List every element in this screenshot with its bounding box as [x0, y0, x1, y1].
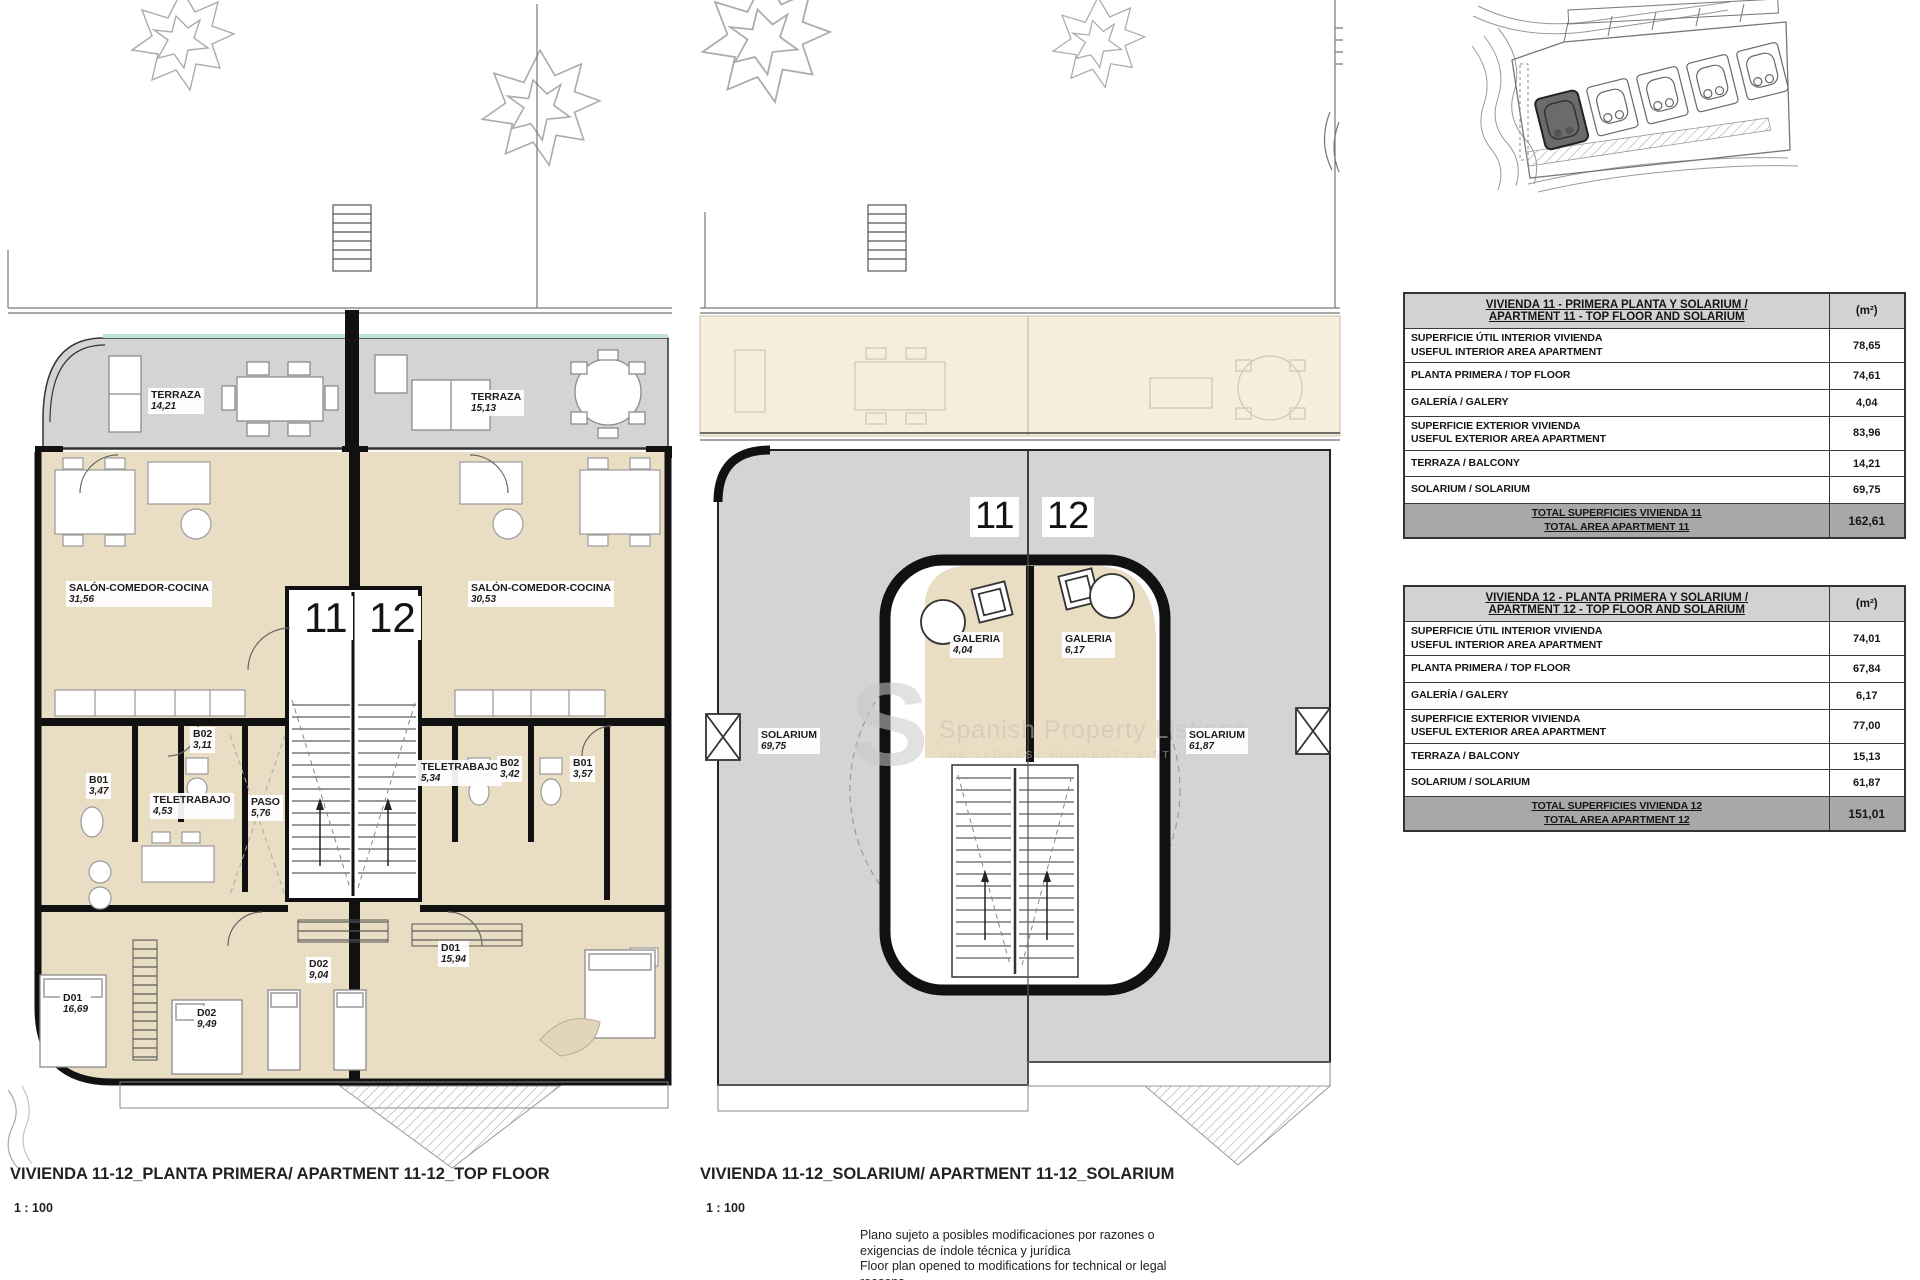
room-label-d01-11: D0116,69 [60, 991, 91, 1017]
unit-number-11-solarium: 11 [970, 497, 1019, 537]
room-label-salon-11: SALÓN-COMEDOR-COCINA31,56 [66, 581, 212, 607]
room-label-galeria-11: GALERIA4,04 [950, 632, 1003, 658]
area-table-apartment-11: VIVIENDA 11 - PRIMERA PLANTA Y SOLARIUM … [1403, 292, 1906, 539]
disclaimer-line-4: reasons [860, 1275, 1280, 1280]
unit-column-header: (m²) [1829, 586, 1905, 622]
exterior-stair-symbols [333, 205, 906, 271]
room-label-b02-11: B023,11 [190, 727, 215, 753]
table-title: VIVIENDA 12 - PLANTA PRIMERA Y SOLARIUM … [1404, 586, 1829, 622]
unit-column-header: (m²) [1829, 293, 1905, 329]
architectural-drawing-sheet: S Spanish Property Listings THE LARGEST … [0, 0, 1920, 1280]
table-row: GALERÍA / GALERY 4,04 [1404, 389, 1905, 416]
table-row: PLANTA PRIMERA / TOP FLOOR 67,84 [1404, 656, 1905, 683]
room-label-b01-11: B013,47 [86, 773, 111, 799]
unit-number-11-topfloor: 11 [299, 596, 353, 640]
disclaimer-line-3: Floor plan opened to modifications for t… [860, 1259, 1280, 1275]
table-row: SUPERFICIE EXTERIOR VIVIENDAUSEFUL EXTER… [1404, 416, 1905, 450]
table-row: SUPERFICIE EXTERIOR VIVIENDAUSEFUL EXTER… [1404, 709, 1905, 743]
floor-plan-top [8, 310, 672, 1168]
disclaimer-line-2: exigencias de índole técnica y jurídica [860, 1244, 1280, 1260]
site-location-map [1472, 0, 1798, 192]
table-header-row: VIVIENDA 11 - PRIMERA PLANTA Y SOLARIUM … [1404, 293, 1905, 329]
room-label-d02-11: D029,49 [194, 1006, 219, 1032]
plot-boundary-lines [8, 0, 1343, 313]
scale-solarium: 1 : 100 [706, 1201, 745, 1215]
table-total-row: TOTAL SUPERFICIES VIVIENDA 12TOTAL AREA … [1404, 797, 1905, 832]
table-row: SOLARIUM / SOLARIUM 69,75 [1404, 477, 1905, 504]
table-row: TERRAZA / BALCONY 15,13 [1404, 743, 1905, 770]
trees-sketch [132, 0, 1145, 165]
room-label-galeria-12: GALERIA6,17 [1062, 632, 1115, 658]
table-title: VIVIENDA 11 - PRIMERA PLANTA Y SOLARIUM … [1404, 293, 1829, 329]
area-table-apartment-12: VIVIENDA 12 - PLANTA PRIMERA Y SOLARIUM … [1403, 585, 1906, 832]
room-label-b01-12: B013,57 [570, 756, 595, 782]
table-row: SUPERFICIE ÚTIL INTERIOR VIVIENDAUSEFUL … [1404, 329, 1905, 363]
room-label-terraza-11: TERRAZA14,21 [148, 388, 204, 414]
table-total-row: TOTAL SUPERFICIES VIVIENDA 11TOTAL AREA … [1404, 504, 1905, 539]
table-row: GALERÍA / GALERY 6,17 [1404, 682, 1905, 709]
caption-top-floor: VIVIENDA 11-12_PLANTA PRIMERA/ APARTMENT… [10, 1165, 550, 1184]
room-label-paso: PASO5,76 [248, 795, 283, 821]
disclaimer-line-1: Plano sujeto a posibles modificaciones p… [860, 1228, 1280, 1244]
room-label-teletrabajo-11: TELETRABAJO4,53 [150, 793, 234, 819]
table-row: SUPERFICIE ÚTIL INTERIOR VIVIENDAUSEFUL … [1404, 622, 1905, 656]
caption-solarium: VIVIENDA 11-12_SOLARIUM/ APARTMENT 11-12… [700, 1165, 1174, 1184]
unit-number-12-topfloor: 12 [364, 596, 421, 640]
table-header-row: VIVIENDA 12 - PLANTA PRIMERA Y SOLARIUM … [1404, 586, 1905, 622]
unit-number-12-solarium: 12 [1042, 497, 1094, 537]
table-row: SOLARIUM / SOLARIUM 61,87 [1404, 770, 1905, 797]
scale-top-floor: 1 : 100 [14, 1201, 53, 1215]
room-label-teletrabajo-12: TELETRABAJO5,34 [418, 760, 502, 786]
disclaimer-note: Plano sujeto a posibles modificaciones p… [860, 1228, 1280, 1280]
room-label-terraza-12: TERRAZA15,13 [468, 390, 524, 416]
room-label-solarium-11: SOLARIUM69,75 [758, 728, 820, 754]
room-label-b02-12: B023,42 [497, 756, 522, 782]
room-label-d01-12: D0115,94 [438, 941, 469, 967]
room-label-salon-12: SALÓN-COMEDOR-COCINA30,53 [468, 581, 614, 607]
room-label-d02-12: D029,04 [306, 957, 331, 983]
room-label-solarium-12: SOLARIUM61,87 [1186, 728, 1248, 754]
table-row: PLANTA PRIMERA / TOP FLOOR 74,61 [1404, 363, 1905, 390]
table-row: TERRAZA / BALCONY 14,21 [1404, 450, 1905, 477]
